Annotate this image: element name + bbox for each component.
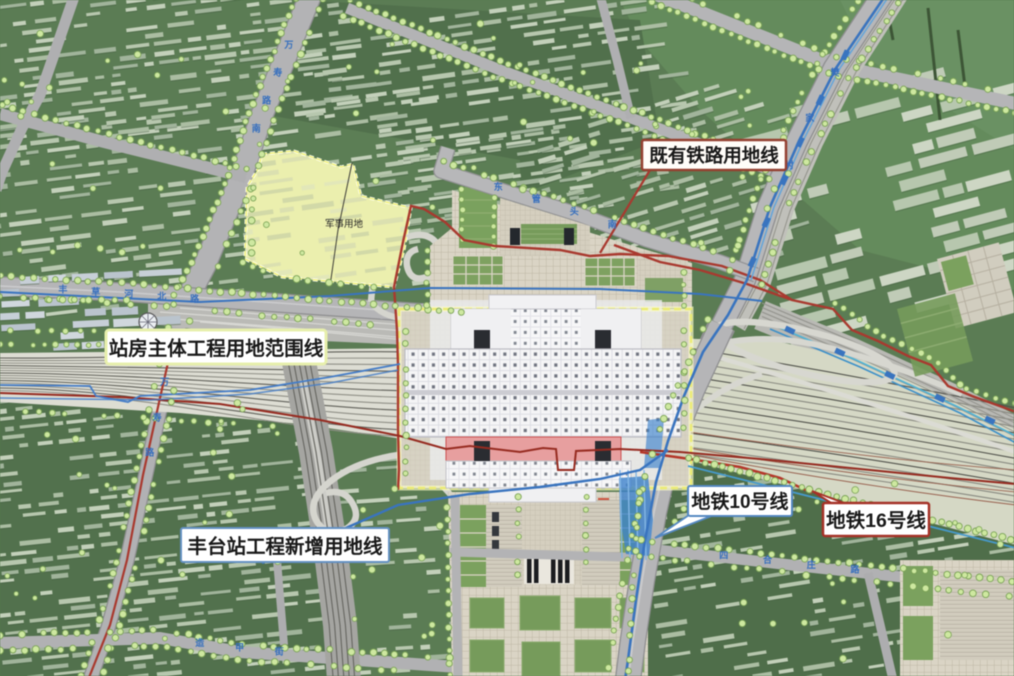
svg-text:管: 管 [532, 193, 541, 204]
svg-text:甲: 甲 [235, 642, 244, 652]
svg-text:庄: 庄 [807, 559, 816, 570]
svg-text:万: 万 [159, 377, 169, 387]
svg-text:南: 南 [608, 219, 617, 230]
svg-text:路: 路 [190, 293, 200, 304]
svg-text:樊: 樊 [830, 67, 840, 78]
svg-text:路: 路 [145, 447, 155, 458]
svg-text:北: 北 [157, 291, 166, 302]
svg-text:寿: 寿 [273, 67, 282, 78]
svg-text:既有铁路用地线: 既有铁路用地线 [649, 145, 779, 166]
svg-text:头: 头 [570, 206, 579, 217]
svg-text:路: 路 [262, 95, 272, 106]
svg-text:草: 草 [91, 286, 100, 297]
svg-text:丰: 丰 [58, 283, 67, 294]
svg-text:东: 东 [494, 181, 503, 192]
svg-text:南: 南 [252, 123, 261, 134]
svg-text:地铁10号线: 地铁10号线 [691, 490, 788, 513]
svg-text:寿: 寿 [153, 411, 162, 422]
svg-text:合: 合 [763, 554, 773, 565]
svg-text:造: 造 [195, 637, 205, 648]
svg-text:路: 路 [850, 563, 860, 574]
svg-text:家: 家 [805, 112, 815, 123]
svg-text:地铁16号线: 地铁16号线 [826, 509, 926, 532]
svg-text:丰台站工程新增用地线: 丰台站工程新增用地线 [187, 535, 383, 558]
svg-text:站房主体工程用地范围线: 站房主体工程用地范围线 [109, 337, 324, 360]
svg-text:四: 四 [719, 551, 728, 561]
svg-text:河: 河 [124, 288, 133, 299]
svg-text:万: 万 [283, 40, 293, 50]
svg-text:军事用地: 军事用地 [325, 218, 364, 230]
svg-text:街: 街 [274, 646, 284, 657]
